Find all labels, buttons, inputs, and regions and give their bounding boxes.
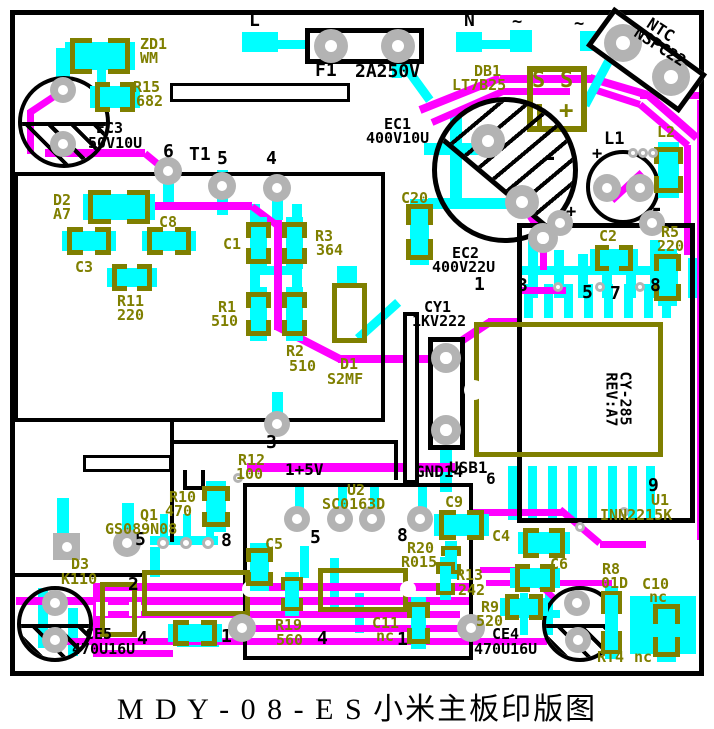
pad-hole <box>325 40 338 53</box>
label-rt4: RT4 <box>597 650 624 665</box>
smd-pad <box>127 190 150 224</box>
label-220: 220 <box>657 239 684 254</box>
pad-hole <box>415 514 425 524</box>
component-outline <box>142 570 250 616</box>
smd-pad <box>246 222 271 238</box>
label-5: 5 <box>582 284 593 302</box>
smd-pad <box>653 637 680 657</box>
label-5: 5 <box>310 529 321 547</box>
smd-pad <box>202 512 230 527</box>
pad-hole <box>122 538 133 549</box>
pad-hole <box>440 352 451 363</box>
through-hole-pad <box>431 343 461 373</box>
smd-pad <box>282 248 307 264</box>
outline-notch <box>400 581 416 597</box>
label-c6: C6 <box>550 557 568 572</box>
through-hole-pad <box>42 590 68 616</box>
via <box>553 282 563 292</box>
via <box>628 148 638 158</box>
pcb-layout-diagram: LN~~F12A250VNTCNSPC22EC350V10U6T154EC140… <box>0 0 714 729</box>
board-outline <box>170 83 350 102</box>
label-8: 8 <box>650 277 661 295</box>
through-hole-pad <box>50 131 76 157</box>
pad-hole <box>50 598 60 608</box>
smd-pad <box>523 528 539 558</box>
smd-pad <box>88 190 111 224</box>
pad-hole <box>602 183 613 194</box>
board-outline <box>83 455 172 472</box>
label-50v10u: 50V10U <box>88 136 142 151</box>
label-6: 6 <box>163 143 174 161</box>
through-hole-pad <box>564 590 590 616</box>
label-+: + <box>592 146 602 163</box>
label-r015: R015 <box>401 555 437 570</box>
label-3: 3 <box>266 434 277 452</box>
label-4: 4 <box>266 150 277 168</box>
pad-hole <box>440 424 451 435</box>
label-c20: C20 <box>401 191 428 206</box>
label-1: 1 <box>221 628 232 646</box>
label-inn2215k: INN2215K <box>600 508 672 523</box>
through-hole-pad <box>407 506 433 532</box>
smd-pad <box>175 227 191 255</box>
smd-pad <box>67 227 83 255</box>
label-c2: C2 <box>599 229 617 244</box>
via <box>157 537 169 549</box>
through-hole-pad <box>314 29 348 63</box>
smd-pad <box>601 591 622 614</box>
label-+: + <box>559 98 573 122</box>
label-c1: C1 <box>223 237 241 252</box>
smd-pad <box>653 604 680 624</box>
label-l: L <box>249 12 260 30</box>
label-c8: C8 <box>159 215 177 230</box>
smd-pad <box>70 38 92 74</box>
label-l2: L2 <box>657 125 675 140</box>
smd-pad <box>439 510 456 540</box>
label-c3: C3 <box>75 260 93 275</box>
label-510: 510 <box>211 314 238 329</box>
through-hole-pad <box>42 627 68 653</box>
smd-pad <box>173 620 189 646</box>
component-outline <box>474 322 663 457</box>
label-s2mf: S2MF <box>327 372 363 387</box>
smd-pad <box>654 254 681 271</box>
smd-pad <box>246 320 271 336</box>
smd-pad <box>529 594 543 620</box>
pad-hole <box>62 542 72 552</box>
label-1+5v: 1+5V <box>285 462 324 478</box>
smd-pad <box>467 510 484 540</box>
through-hole-pad <box>263 174 291 202</box>
through-hole-pad <box>228 614 256 642</box>
pad-hole <box>482 135 495 148</box>
via <box>180 537 192 549</box>
pad-hole <box>163 166 174 177</box>
pad-hole <box>516 196 529 209</box>
smd-pad <box>282 222 307 238</box>
label-2: 2 <box>128 576 139 594</box>
smd-pad <box>281 577 303 590</box>
label-01d: 01D <box>601 576 628 591</box>
label-s: S <box>560 70 573 92</box>
label-5: 5 <box>217 150 228 168</box>
label-8: 8 <box>221 532 232 550</box>
label-wm: WM <box>140 51 158 66</box>
smd-pad <box>406 204 433 225</box>
label-1: 1 <box>397 631 408 649</box>
smd-pad <box>505 594 519 620</box>
label-3: 3 <box>517 277 528 295</box>
diagram-caption: M D Y - 0 8 - E S 小米主板印版图 <box>0 684 714 728</box>
label-2a250v: 2A250V <box>355 63 420 81</box>
component-outline <box>332 283 367 343</box>
label-100: 100 <box>236 467 263 482</box>
label-s: S <box>532 70 545 92</box>
smd-pad <box>112 264 127 291</box>
smd-pad <box>95 82 110 112</box>
component-outline <box>318 568 408 612</box>
label-sc0163d: SC0163D <box>322 497 385 512</box>
pad-hole <box>572 598 582 608</box>
smd-pad <box>282 292 307 308</box>
pad-hole <box>272 419 282 429</box>
pad-hole <box>367 514 377 524</box>
through-hole-pad <box>593 174 621 202</box>
label-n: N <box>464 12 475 30</box>
label-a7: A7 <box>53 207 71 222</box>
label-510: 510 <box>289 359 316 374</box>
label--: - <box>544 148 557 170</box>
label-~: ~ <box>512 14 522 31</box>
through-hole-pad <box>431 415 461 445</box>
label--: - <box>650 199 663 221</box>
label-6: 6 <box>486 471 496 487</box>
label-7: 7 <box>610 285 621 303</box>
pad-hole <box>635 183 646 194</box>
smd-pad <box>95 227 111 255</box>
pad-hole <box>664 70 678 84</box>
label-l1: L1 <box>604 131 624 148</box>
label-470: 470 <box>165 504 192 519</box>
label-nc: nc <box>649 590 667 605</box>
label-k110: K110 <box>61 572 97 587</box>
through-hole-pad <box>471 124 505 158</box>
smd-pad <box>406 239 433 260</box>
smd-pad <box>282 320 307 336</box>
label-nc: nc <box>376 629 394 644</box>
label-f1: F1 <box>315 62 337 80</box>
pcb-board: LN~~F12A250VNTCNSPC22EC350V10U6T154EC140… <box>0 0 714 729</box>
smd-pad <box>619 245 633 271</box>
smd-pad <box>595 245 609 271</box>
board-outline <box>403 312 419 484</box>
pad-hole <box>466 623 477 634</box>
smd-pad <box>246 292 271 308</box>
pad-hole <box>58 85 68 95</box>
pad-hole <box>58 139 68 149</box>
via <box>648 148 658 158</box>
label-c5: C5 <box>265 537 283 552</box>
smd-pad <box>549 528 565 558</box>
pad-hole <box>537 232 548 243</box>
via <box>595 282 605 292</box>
smd-pad <box>201 620 217 646</box>
label-gs089n08: GS089N08 <box>105 522 177 537</box>
smd-pad <box>202 486 230 501</box>
label-400v22u: 400V22U <box>432 260 495 275</box>
label-400v10u: 400V10U <box>366 131 429 146</box>
label-220: 220 <box>117 308 144 323</box>
label-1: 1 <box>474 276 485 294</box>
label-1kv222: 1KV222 <box>412 314 466 329</box>
through-hole-pad <box>381 29 415 63</box>
through-hole-pad <box>50 77 76 103</box>
label-470u16u: 470U16U <box>72 642 135 657</box>
label-364: 364 <box>316 243 343 258</box>
through-hole-pad <box>208 172 236 200</box>
pad-hole <box>292 514 302 524</box>
via <box>202 537 214 549</box>
smd-pad <box>108 38 130 74</box>
pad-hole <box>573 635 583 645</box>
pad-hole <box>272 183 283 194</box>
label-4: 4 <box>317 630 328 648</box>
pad-hole <box>335 514 345 524</box>
via <box>635 282 645 292</box>
pad-hole <box>616 36 630 50</box>
through-hole-pad <box>505 185 539 219</box>
smd-pad <box>407 602 430 618</box>
through-hole-pad <box>284 506 310 532</box>
label-usb1: USB1 <box>449 460 488 476</box>
label-470u16u: 470U16U <box>474 642 537 657</box>
smd-pad <box>654 176 683 193</box>
smd-pad <box>654 147 683 164</box>
through-hole-pad <box>565 627 591 653</box>
pad-hole <box>555 218 565 228</box>
pad-hole <box>50 635 60 645</box>
pad-hole <box>217 181 228 192</box>
smd-pad <box>281 598 303 611</box>
label-520: 520 <box>476 614 503 629</box>
smd-pad <box>436 583 455 595</box>
label-4: 4 <box>137 630 148 648</box>
label-682: 682 <box>136 94 163 109</box>
smd-pad <box>515 564 530 592</box>
label-+: + <box>566 204 576 221</box>
smd-pad <box>436 562 455 574</box>
smd-pad <box>441 546 461 556</box>
smd-pad <box>147 227 163 255</box>
smd-pad <box>137 264 152 291</box>
pad-hole <box>392 40 405 53</box>
label-560: 560 <box>276 633 303 648</box>
via <box>638 148 648 158</box>
label-reva7: REV:A7 <box>604 372 619 426</box>
label-~: ~ <box>574 16 584 33</box>
label-242: 242 <box>458 583 485 598</box>
pad-hole <box>237 623 248 634</box>
via <box>575 522 585 532</box>
smd-pad <box>246 572 273 586</box>
smd-pad <box>407 628 430 644</box>
label-lt7b25: LT7B25 <box>452 78 506 93</box>
outline-notch <box>464 380 484 400</box>
label-c9: C9 <box>445 495 463 510</box>
label-t1: T1 <box>189 146 211 164</box>
label-nc: nc <box>634 650 652 665</box>
smd-pad <box>246 248 271 264</box>
label-c4: C4 <box>492 529 510 544</box>
